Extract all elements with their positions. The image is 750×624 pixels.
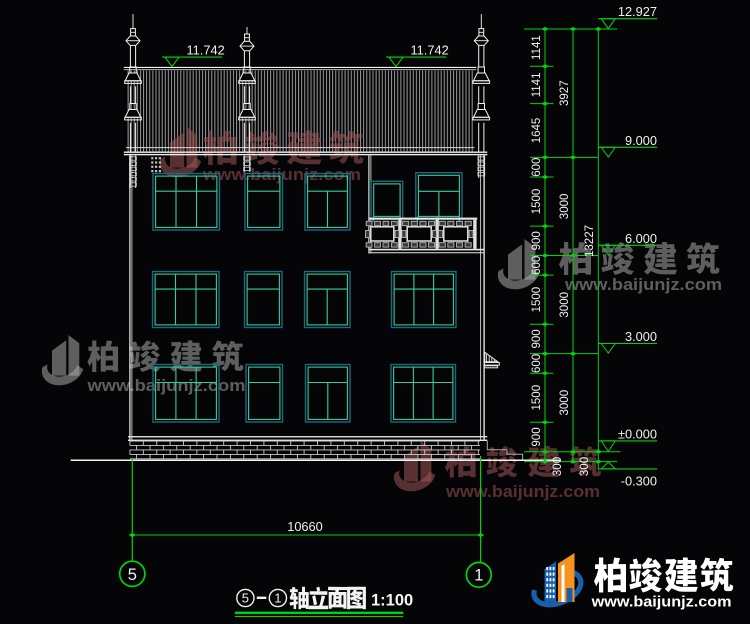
- svg-text:3927: 3927: [559, 80, 571, 106]
- svg-text:10660: 10660: [287, 519, 323, 534]
- svg-text:6.000: 6.000: [625, 231, 657, 246]
- svg-text:300: 300: [579, 457, 591, 476]
- svg-text:1: 1: [474, 567, 483, 585]
- svg-text:www.baijunjz.com: www.baijunjz.com: [564, 276, 722, 294]
- svg-text:13227: 13227: [584, 225, 596, 257]
- svg-text:www.baijunjz.com: www.baijunjz.com: [445, 483, 600, 501]
- svg-text:1500: 1500: [531, 385, 543, 411]
- svg-text:900: 900: [531, 231, 543, 250]
- svg-text:www.baijunjz.com: www.baijunjz.com: [86, 377, 245, 395]
- svg-text:900: 900: [531, 329, 543, 348]
- svg-text:1500: 1500: [531, 287, 543, 313]
- svg-text:900: 900: [531, 427, 543, 446]
- svg-text:1: 1: [274, 591, 281, 606]
- svg-text:600: 600: [531, 158, 543, 177]
- svg-text:1645: 1645: [531, 118, 543, 144]
- svg-text:5: 5: [128, 566, 137, 584]
- svg-text:1500: 1500: [531, 189, 543, 215]
- svg-text:9.000: 9.000: [625, 133, 657, 148]
- svg-text:5: 5: [242, 591, 249, 606]
- svg-text:12.927: 12.927: [618, 4, 657, 19]
- svg-text:11.742: 11.742: [411, 43, 449, 58]
- svg-text:3.000: 3.000: [625, 329, 657, 344]
- svg-text:300: 300: [552, 457, 564, 476]
- svg-text:1141: 1141: [531, 73, 543, 98]
- svg-text:600: 600: [531, 256, 543, 275]
- svg-text:-0.300: -0.300: [621, 474, 657, 489]
- svg-text:1:100: 1:100: [371, 591, 413, 609]
- svg-text:±0.000: ±0.000: [618, 426, 657, 441]
- svg-text:www.baijunjz.com: www.baijunjz.com: [590, 595, 731, 611]
- svg-text:www.baijunjz.com: www.baijunjz.com: [202, 166, 361, 184]
- svg-text:3000: 3000: [559, 194, 571, 220]
- svg-text:3000: 3000: [559, 292, 571, 318]
- svg-text:3000: 3000: [559, 390, 571, 416]
- svg-text:600: 600: [531, 354, 543, 373]
- svg-text:11.742: 11.742: [187, 43, 225, 58]
- svg-text:1141: 1141: [531, 35, 543, 60]
